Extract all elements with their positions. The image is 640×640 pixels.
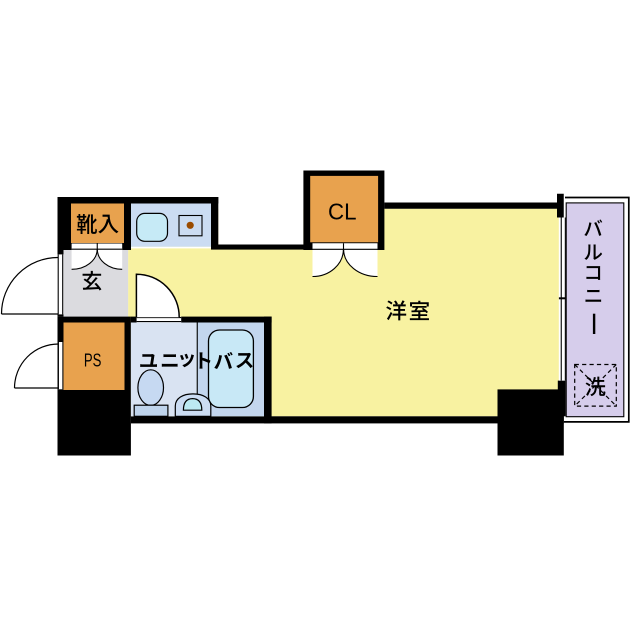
svg-text:CL: CL xyxy=(328,199,357,225)
svg-text:PS: PS xyxy=(84,351,102,371)
